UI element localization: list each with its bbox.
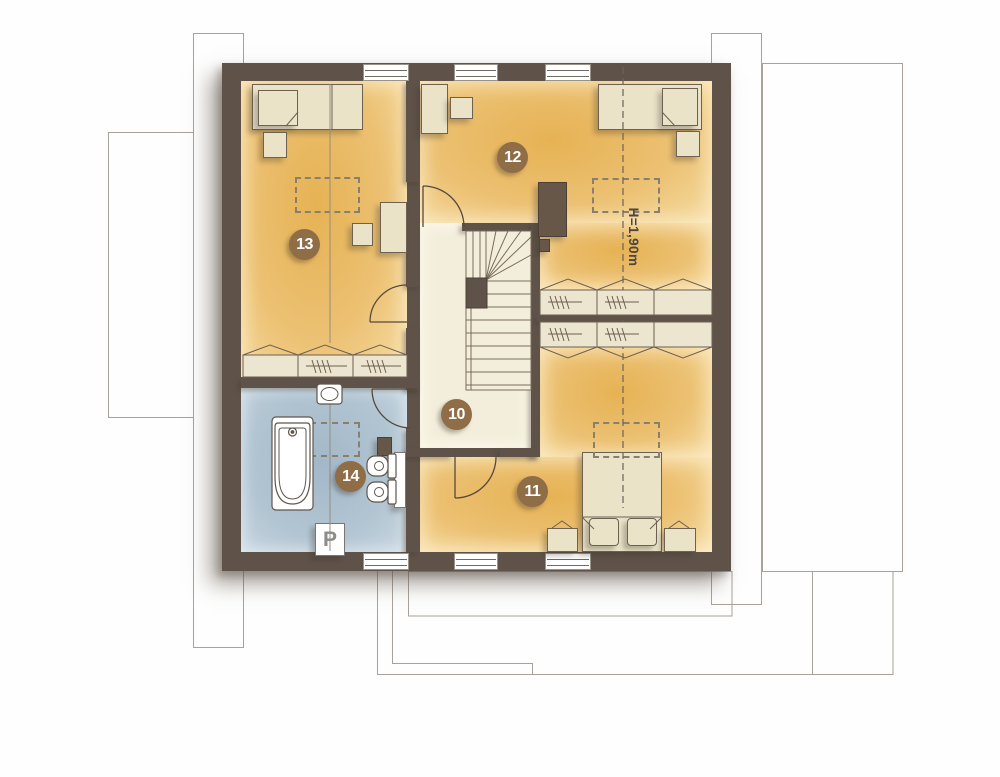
outline-bottom-right-rect bbox=[813, 572, 894, 675]
room-badge-14: 14 bbox=[335, 461, 366, 492]
wardrobe-dashed-room11 bbox=[593, 422, 660, 458]
hall-10-floor bbox=[420, 223, 531, 448]
wall-hall-south-left bbox=[406, 448, 453, 457]
window bbox=[363, 64, 409, 81]
room-badge-13: 13 bbox=[289, 229, 320, 260]
pillow bbox=[258, 90, 298, 126]
nightstand bbox=[664, 528, 696, 552]
washing-machine-label: P bbox=[323, 528, 337, 552]
boiler-box bbox=[377, 437, 392, 456]
room-badge-11-label: 11 bbox=[525, 483, 541, 501]
nightstand bbox=[547, 528, 578, 552]
window bbox=[545, 64, 591, 81]
outline-left-rect bbox=[109, 133, 194, 418]
window bbox=[454, 64, 498, 81]
room-badge-10: 10 bbox=[441, 399, 472, 430]
desk-room12 bbox=[421, 84, 448, 134]
pillow bbox=[662, 88, 698, 126]
desk-room13 bbox=[380, 202, 407, 253]
outline-bottom-step bbox=[393, 571, 533, 675]
chair-room12 bbox=[450, 97, 473, 119]
room-badge-14-label: 14 bbox=[342, 468, 359, 486]
wardrobe-dashed-room13 bbox=[295, 177, 360, 213]
nightstand bbox=[676, 131, 700, 157]
nightstand bbox=[263, 132, 287, 158]
floor-plan-canvas: P bbox=[0, 0, 1000, 777]
wall-room13-east-upper bbox=[406, 81, 420, 182]
pillow bbox=[589, 518, 619, 546]
wardrobe-room12 bbox=[538, 182, 567, 237]
wall-wardrobe-spine bbox=[537, 315, 712, 322]
shower-dashed-bathroom bbox=[310, 422, 360, 457]
bathroom-cabinet bbox=[394, 452, 406, 508]
room-badge-12-label: 12 bbox=[504, 149, 521, 167]
room-badge-11: 11 bbox=[517, 476, 548, 507]
washing-machine: P bbox=[315, 523, 345, 556]
room-badge-12: 12 bbox=[497, 142, 528, 173]
window bbox=[363, 553, 409, 570]
attic-height-label: H=1,90m bbox=[625, 194, 641, 280]
pillow bbox=[627, 518, 657, 546]
wall-hall-south-right bbox=[500, 448, 540, 457]
window bbox=[545, 553, 591, 570]
room-badge-10-label: 10 bbox=[448, 406, 465, 424]
outline-bottom-l bbox=[378, 571, 894, 675]
outline-right-rect bbox=[763, 64, 903, 572]
chair-room13 bbox=[352, 223, 373, 246]
room-badge-13-label: 13 bbox=[296, 236, 313, 254]
window bbox=[454, 553, 498, 570]
wall-hall-east bbox=[531, 223, 540, 457]
wall-bathroom-east bbox=[406, 428, 420, 552]
outline-terrace-rect bbox=[409, 572, 733, 617]
wall-stair-north bbox=[462, 223, 540, 231]
stool-room12 bbox=[539, 239, 550, 252]
wall-bathroom-north bbox=[241, 377, 420, 388]
wall-room13-east-mid bbox=[406, 223, 420, 287]
